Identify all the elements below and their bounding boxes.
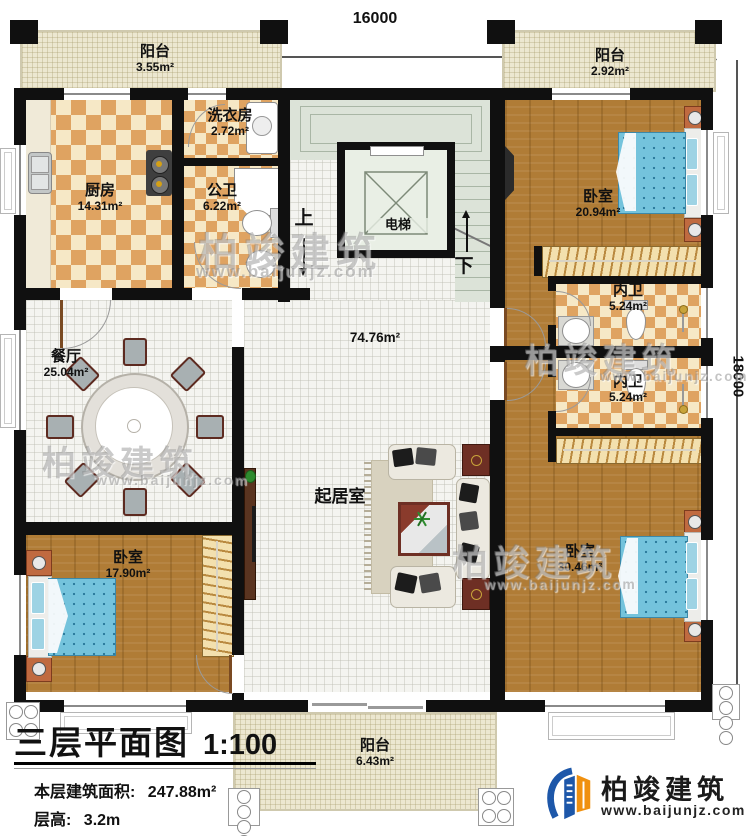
column [487,20,515,44]
room-area: 5.24m² [586,300,670,313]
wall [534,246,542,276]
room-name: 餐厅 [20,349,112,366]
sofa-cushion [459,483,480,504]
side-table-knob [471,589,482,600]
pillow [31,618,45,650]
sink [246,250,276,278]
dimension-right-value: 18000 [729,345,746,407]
room-label-bedroom-br: 卧室 30.46m² [528,544,632,574]
nightstand [26,656,52,682]
room-name: 卧室 [76,550,180,567]
wall [232,347,244,655]
pillow [686,174,698,206]
nightstand [26,550,52,576]
wall [490,346,505,362]
room-label-living: 起居室 [296,487,384,506]
title-underline-thin [14,768,316,769]
room-label-balcony-tl: 阳台 3.55m² [111,44,199,74]
sofa-cushion [415,447,437,466]
title-row: 三层平面图 1:100 [14,716,334,760]
side-table [462,444,490,476]
room-area: 25.04m² [20,366,112,379]
floor-area-label: 本层建筑面积: [34,784,135,801]
window [545,700,665,712]
wall [14,288,60,300]
logo-url: www.baijunjz.com [601,802,746,818]
column-base [228,788,260,826]
floor-height-value: 3.2m [84,812,120,829]
stairs-down-arrowhead [462,210,470,218]
wardrobe-rail [563,449,696,451]
window [188,88,226,100]
window-bay [548,712,675,740]
room-label-laundry: 洗衣房 2.72m² [193,108,267,138]
side-table-knob [471,455,482,466]
dining-table-center [127,419,141,433]
wall [278,98,290,302]
room-label-dining: 餐厅 25.04m² [20,349,112,379]
room-area: 3.55m² [111,61,199,74]
room-label-ensuite-top: 内卫 5.24m² [586,283,670,313]
room-label-kitchen: 厨房 14.31m² [53,183,147,213]
room-name: 阳台 [566,48,654,65]
nightstand-lamp [688,223,702,237]
room-label-bedroom-tr: 卧室 20.94m² [548,189,648,219]
chair [46,415,74,439]
room-name: 洗衣房 [193,108,267,125]
sliding-door [64,88,130,100]
door-leaf [60,300,63,348]
floor-plan: 16000 18000 电梯 上 下 [0,0,750,836]
plan-title: 三层平面图 [14,716,189,764]
column [695,20,722,44]
column [10,20,38,44]
elevator-car-icon [345,150,447,250]
stairs-up-arrowhead [299,268,307,276]
room-area: 6.22m² [178,200,266,213]
window [64,700,186,712]
tv [252,506,256,562]
window-bay [713,132,729,214]
room-label-public-bath: 公卫 6.22m² [178,183,266,213]
chair [123,488,147,516]
nightstand-lamp [688,111,702,125]
floor-area-row: 本层建筑面积: 247.88m² [34,778,216,802]
nightstand-lamp [688,623,702,637]
title-underline [14,762,316,765]
wardrobe [202,535,234,657]
room-label-balcony-tr: 阳台 2.92m² [566,48,654,78]
pillow [686,542,698,574]
wall [242,288,310,300]
wall [490,98,505,308]
stairs-up-arrow [303,238,305,270]
room-area: 14.31m² [53,200,147,213]
chair [196,415,224,439]
elevator-shaft [337,142,455,258]
wall [548,346,703,358]
room-label-ensuite-bottom: 内卫 5.24m² [586,374,670,404]
room-name: 阳台 [328,738,422,755]
room-name: 内卫 [586,374,670,391]
room-area: 30.46m² [528,561,632,574]
floor-area-value: 247.88m² [148,784,217,801]
column [260,20,288,44]
column-base [712,684,740,720]
wall [112,288,192,300]
room-area: 20.94m² [548,206,648,219]
pillow [686,138,698,170]
wall [490,400,505,700]
room-label-balcony-bottom: 阳台 6.43m² [328,738,422,768]
sliding-door-panel [312,703,367,706]
elevator-label: 电梯 [368,218,428,233]
chair [123,338,147,366]
floor-height-label: 层高: [34,812,71,829]
column-base [478,788,514,826]
side-table [462,578,490,610]
wall [548,411,556,436]
room-name: 卧室 [528,544,632,561]
nightstand-lamp [688,515,702,529]
window [701,540,713,620]
pillow [686,578,698,610]
stairs-down-arrow [466,218,468,252]
towel-hook [679,405,688,414]
floor-height-row: 层高: 3.2m [34,806,120,830]
window [701,130,713,215]
room-name: 内卫 [586,283,670,300]
room-area: 2.92m² [566,65,654,78]
wardrobe [542,246,703,278]
window-bay [0,148,16,214]
wardrobe [556,438,703,464]
wall [548,436,556,462]
pillow [31,582,45,614]
room-area: 6.43m² [328,755,422,768]
window [701,366,713,418]
sliding-door [552,88,630,100]
wall [548,276,556,291]
dimension-top-value: 16000 [340,10,410,28]
sliding-door-panel [368,706,423,709]
door-leaf [229,655,232,693]
window [701,288,713,338]
sofa-cushion [392,448,414,468]
plan-scale: 1:100 [203,729,277,762]
window [14,575,26,655]
plant [245,470,256,483]
rug-fringe [364,462,371,590]
room-name: 卧室 [548,189,648,206]
room-name: 厨房 [53,183,147,200]
wall [184,158,282,166]
room-name: 公卫 [178,183,266,200]
wall [14,522,232,535]
wall [232,693,244,712]
stairs-up-label: 上 [291,208,317,229]
window-bay [0,334,16,428]
toilet [242,210,272,236]
sofa-cushion [459,511,479,531]
coffee-table [398,502,450,556]
wall [505,346,548,360]
room-label-bedroom-bl: 卧室 17.90m² [76,550,180,580]
kitchen-sink-basin [31,156,49,173]
sofa-cushion [419,572,442,593]
logo-icon [543,766,597,824]
nightstand-lamp [32,662,46,676]
room-area: 17.90m² [76,567,180,580]
wall [548,325,556,377]
kitchen-sink-basin [31,174,49,190]
wardrobe-rail [216,541,218,651]
room-area: 2.72m² [193,125,267,138]
burner-center [156,181,162,187]
elevator-door [370,146,424,156]
room-name: 阳台 [111,44,199,61]
nightstand-lamp [32,556,46,570]
sofa-cushion [394,572,417,594]
room-area: 5.24m² [586,391,670,404]
hall-area-label: 74.76m² [323,330,427,345]
kitchen-counter [26,100,51,288]
towel-hook [679,305,688,314]
stair-landing-line [310,114,472,144]
burner-center [156,161,162,167]
wardrobe-rail [549,260,695,262]
wall [548,428,703,436]
stairs-down-label: 下 [451,256,477,277]
